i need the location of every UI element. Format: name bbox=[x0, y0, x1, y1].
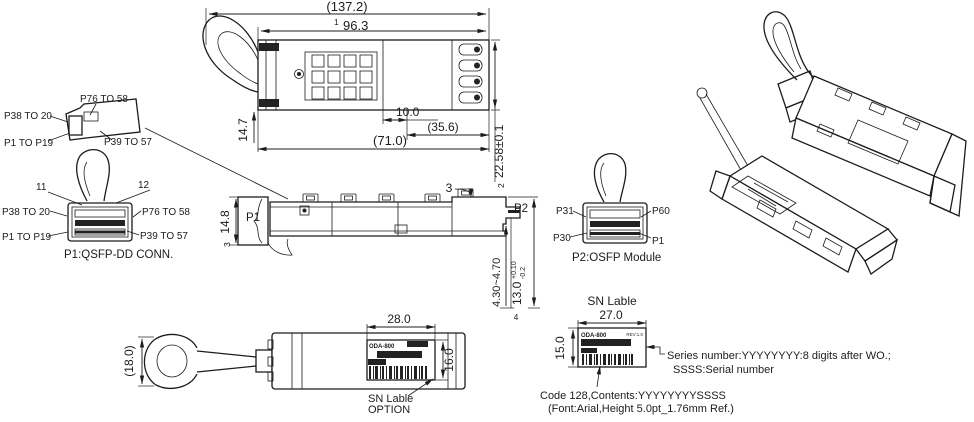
module-body-top bbox=[258, 40, 489, 110]
dim-slot: 10.0 bbox=[396, 105, 420, 119]
tolerance-plus: +0.10 bbox=[511, 261, 518, 279]
p1-label-right-lower: P39 TO 57 bbox=[140, 231, 188, 242]
dim-ref-356: (35.6) bbox=[427, 120, 458, 134]
dim-height-left: 14.8 bbox=[218, 210, 232, 234]
note-code-line2: (Font:Arial,Height 5.0pt_1.76mm Ref.) bbox=[548, 403, 734, 415]
dim-body-height-group: 13.0 +0.10 -0.2 4 bbox=[510, 261, 527, 322]
plug-label-right: P39 TO 57 bbox=[104, 137, 152, 148]
p1-caption: P1:QSFP-DD CONN. bbox=[64, 249, 173, 261]
dim-nose-range: 4.30~4.70 bbox=[491, 258, 503, 307]
p2-label-p30: P30 bbox=[553, 233, 571, 244]
side-port-p2: P2 bbox=[514, 203, 528, 215]
p1-pin-11: 11 bbox=[36, 182, 47, 193]
plug-label-top: P76 TO 58 bbox=[80, 94, 128, 105]
sn-callout-line2: OPTION bbox=[368, 404, 410, 416]
dim-tab-width: 14.7 bbox=[236, 118, 250, 142]
dim-tab-height: (18.0) bbox=[122, 345, 136, 376]
bottom-view: ODA-800 (18.0) 28.0 16.0 SN Lable OPTION bbox=[122, 312, 465, 416]
dim-note-4: 4 bbox=[514, 312, 519, 322]
dim-body-length: 96.3 bbox=[343, 18, 368, 33]
note-series-line2: SSSS:Serial number bbox=[673, 364, 774, 376]
bottom-pull-tab bbox=[144, 334, 197, 388]
balloon-3: 3 bbox=[446, 181, 453, 195]
leader-to-side-view bbox=[145, 128, 288, 199]
engineering-drawing-canvas: (137.2) 1 96.3 14.7 10.0 (35.6) (71.0) 2… bbox=[0, 0, 974, 422]
p1-pin-12: 12 bbox=[138, 180, 150, 191]
dim-width: 22.58±0.1 bbox=[492, 124, 506, 178]
p1-label-right-upper: P76 TO 58 bbox=[142, 207, 190, 218]
sn-dim-width: 27.0 bbox=[599, 308, 623, 322]
note-series-line1: Series number:YYYYYYYY:8 digits after WO… bbox=[667, 350, 891, 362]
engineering-drawing: (137.2) 1 96.3 14.7 10.0 (35.6) (71.0) 2… bbox=[0, 0, 974, 422]
p2-caption: P2:OSFP Module bbox=[572, 252, 661, 264]
dim-note-2: 2 bbox=[496, 183, 506, 188]
dim-ref-710: (71.0) bbox=[373, 133, 407, 148]
p1-label-left-upper: P38 TO 20 bbox=[2, 207, 50, 218]
dim-overall-length: (137.2) bbox=[326, 0, 367, 14]
p2-label-p31: P31 bbox=[556, 206, 574, 217]
p1-handle bbox=[77, 150, 110, 201]
p1-label-left-lower: P1 TO P19 bbox=[2, 232, 52, 243]
dim-note-1: 1 bbox=[334, 17, 339, 27]
sn-label-detail: SN Lable 27.0 15.0 ODA-800 REV:1.0 Serie… bbox=[540, 294, 891, 415]
plug-label-left-lower: P1 TO P19 bbox=[4, 138, 54, 149]
sn-label-title: SN Lable bbox=[587, 294, 637, 308]
dim-note-3: 3 bbox=[222, 242, 232, 247]
p2-connector-view: P31 P60 P30 P1 P2:OSFP Module bbox=[553, 154, 670, 264]
dim-label-width: 28.0 bbox=[387, 312, 411, 326]
sticker-model-text: ODA-800 bbox=[369, 344, 395, 350]
plug-label-left-upper: P38 TO 20 bbox=[4, 111, 52, 122]
sn-dim-height: 15.0 bbox=[553, 336, 567, 360]
sn-sticker-model: ODA-800 bbox=[581, 333, 607, 339]
p2-label-p60: P60 bbox=[652, 206, 670, 217]
p2-label-p1: P1 bbox=[652, 236, 665, 247]
side-port-p1: P1 bbox=[246, 212, 260, 224]
sn-sticker-rev: REV:1.0 bbox=[626, 332, 643, 337]
tolerance-minus: -0.2 bbox=[520, 267, 527, 279]
dim-body-height: 13.0 bbox=[510, 281, 524, 305]
note-code-line1: Code 128,Contents:YYYYYYYYSSSS bbox=[540, 390, 726, 402]
p1-connector-view: 11 12 P38 TO 20 P76 TO 58 P1 TO P19 P39 … bbox=[2, 150, 190, 261]
pull-tab-outline bbox=[203, 16, 258, 92]
top-view: (137.2) 1 96.3 14.7 10.0 (35.6) (71.0) 2… bbox=[203, 0, 506, 188]
dim-label-height: 16.0 bbox=[442, 348, 456, 372]
side-view: P1 14.8 3 3 P2 4.30~4.70 13.0 +0.10 -0.2… bbox=[218, 181, 540, 322]
p2-handle bbox=[594, 154, 625, 202]
